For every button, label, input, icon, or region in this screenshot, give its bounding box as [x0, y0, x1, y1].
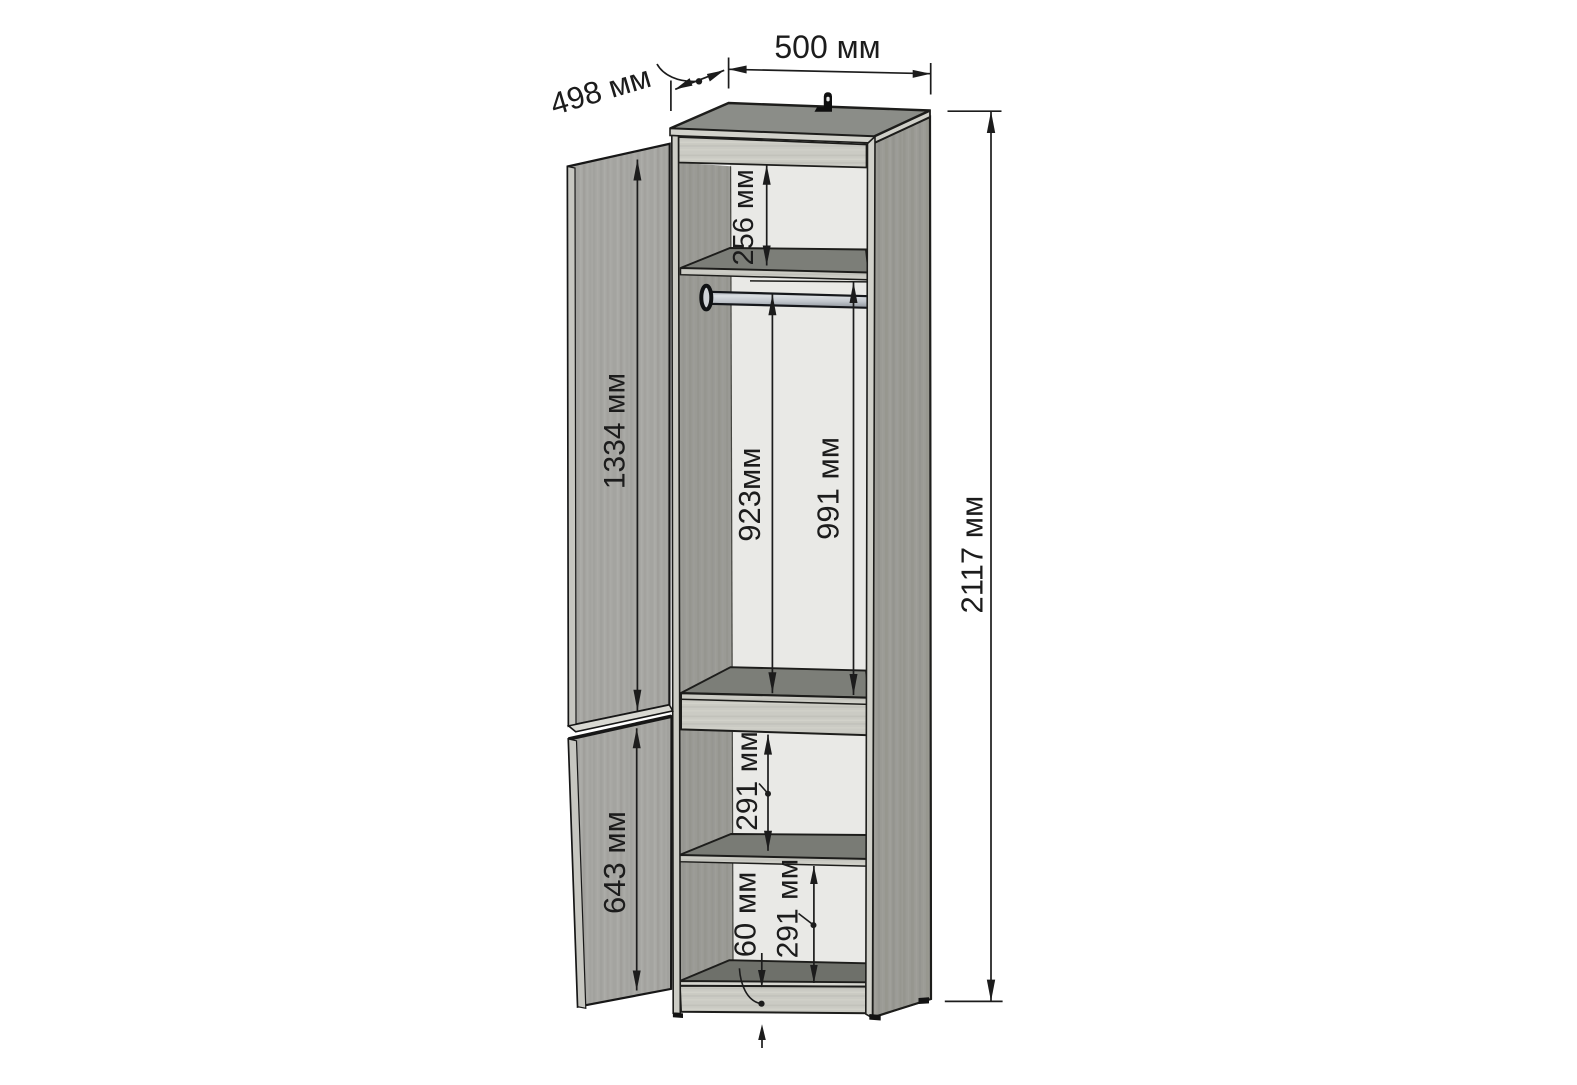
- svg-text:923мм: 923мм: [732, 447, 767, 541]
- svg-text:643 мм: 643 мм: [597, 811, 632, 914]
- svg-text:256 мм: 256 мм: [728, 169, 760, 265]
- svg-text:500 мм: 500 мм: [774, 29, 880, 65]
- svg-text:60 мм: 60 мм: [728, 872, 763, 958]
- svg-text:1334 мм: 1334 мм: [598, 373, 631, 489]
- svg-text:2117 мм: 2117 мм: [955, 496, 990, 614]
- svg-text:991 мм: 991 мм: [810, 437, 845, 540]
- svg-text:291 мм: 291 мм: [772, 859, 805, 959]
- svg-text:291 мм: 291 мм: [731, 731, 764, 831]
